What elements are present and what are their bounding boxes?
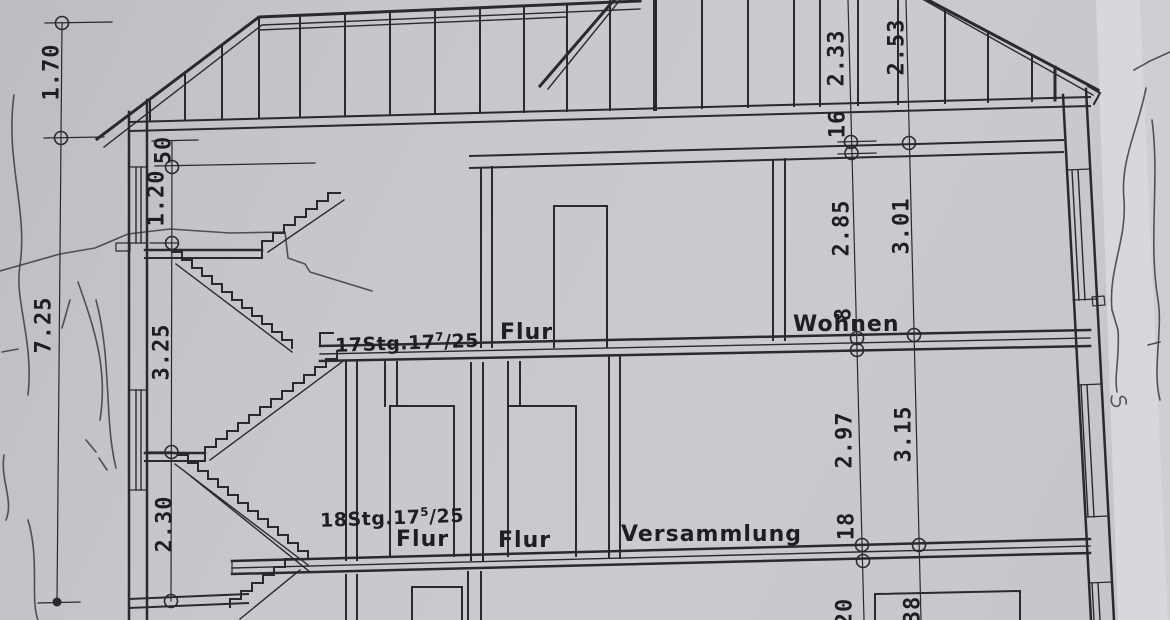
- dim-left-outer-1-70: 1.70: [40, 44, 65, 101]
- room-label-flur-upper: Flur: [500, 320, 553, 345]
- dim-right-20: 20: [833, 598, 858, 620]
- stair-note-upper-prefix: 17Stg.17: [335, 331, 436, 356]
- room-label-wohnen: Wohnen: [793, 312, 900, 337]
- dim-right-2-85: 2.85: [830, 200, 855, 257]
- blueprint-photo: 1.70 7.25 50 1.20 3.25 2.30 2.33 16 2.85…: [0, 0, 1170, 620]
- dim-left-inner-1-20: 1.20: [145, 170, 170, 227]
- dim-right-2-97: 2.97: [833, 412, 858, 469]
- stairs: [172, 193, 344, 619]
- stair-note-lower-prefix: 18Stg.17: [320, 506, 421, 531]
- dim-left-inner-50: 50: [152, 136, 177, 165]
- room-label-flur-mid-1: Flur: [396, 527, 449, 552]
- dim-right-18: 18: [835, 512, 860, 541]
- room-label-flur-mid-2: Flur: [498, 528, 551, 553]
- dim-right-2-33: 2.33: [825, 30, 850, 87]
- dim-left-outer-7-25: 7.25: [32, 297, 57, 354]
- dim-right-3-15: 3.15: [892, 406, 917, 463]
- roof-structure: [97, 0, 1100, 168]
- dim-right-3-01: 3.01: [890, 198, 915, 255]
- floor-slabs: [145, 250, 1090, 574]
- stair-note-upper-suffix: /25: [444, 330, 480, 353]
- dim-right-38: 38: [901, 596, 926, 620]
- dim-right-2-53: 2.53: [885, 19, 910, 76]
- dim-left-inner-3-25: 3.25: [150, 324, 175, 381]
- stair-note-lower-suffix: /25: [429, 505, 465, 528]
- room-label-versammlung: Versammlung: [621, 522, 802, 547]
- dim-left-inner-2-30: 2.30: [153, 496, 178, 553]
- dim-right-16: 16: [826, 110, 851, 139]
